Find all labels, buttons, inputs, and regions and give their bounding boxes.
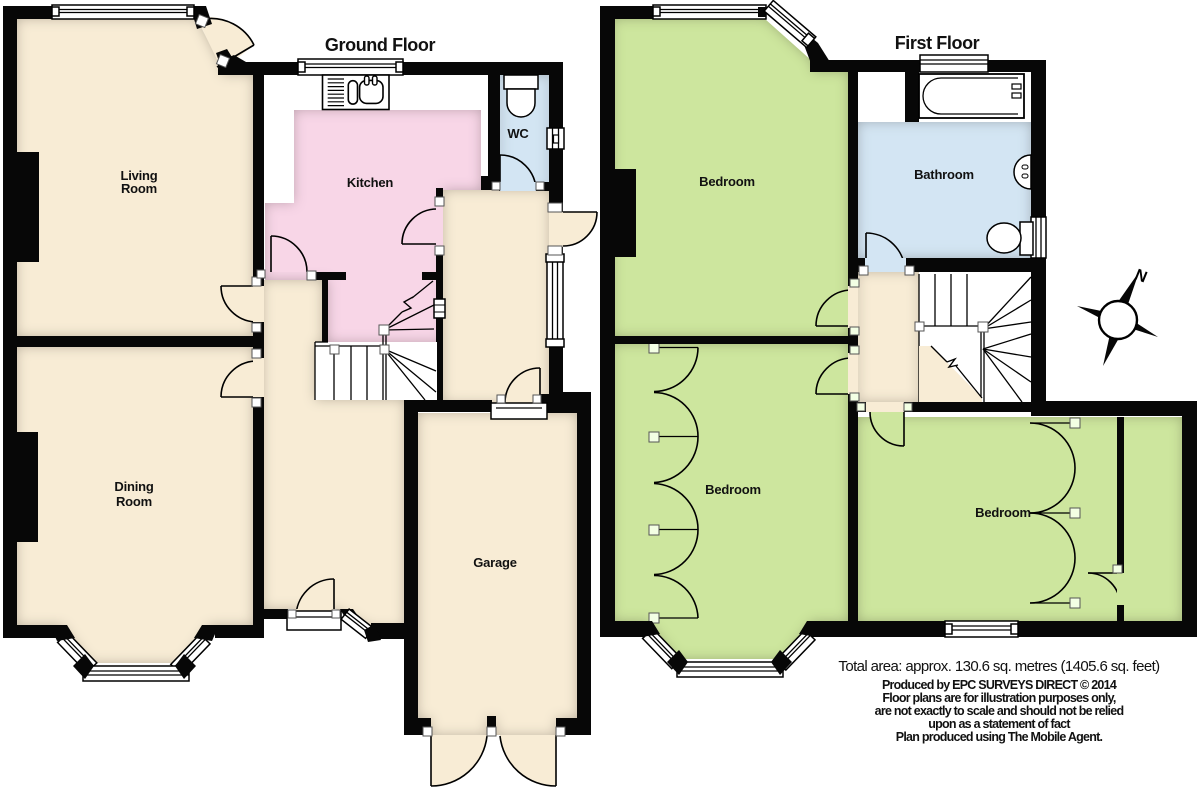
svg-text:are not exactly to scale and s: are not exactly to scale and should not … <box>875 704 1124 718</box>
svg-text:Plan produced using The Mobile: Plan produced using The Mobile Agent. <box>896 730 1103 744</box>
svg-text:Bedroom: Bedroom <box>975 505 1031 520</box>
svg-text:Bathroom: Bathroom <box>914 167 974 182</box>
svg-text:Room: Room <box>116 494 152 509</box>
svg-text:Room: Room <box>121 181 157 196</box>
svg-text:Bedroom: Bedroom <box>705 482 761 497</box>
svg-text:Floor plans are for illustrati: Floor plans are for illustration purpose… <box>882 691 1116 705</box>
svg-text:Produced by EPC SURVEYS DIRECT: Produced by EPC SURVEYS DIRECT © 2014 <box>882 678 1117 692</box>
svg-text:Ground Floor: Ground Floor <box>325 35 436 55</box>
svg-text:upon as a statement of fact: upon as a statement of fact <box>928 717 1071 731</box>
svg-text:Garage: Garage <box>473 555 517 570</box>
svg-text:First Floor: First Floor <box>895 33 980 53</box>
svg-text:Dining: Dining <box>114 479 153 494</box>
svg-text:Bedroom: Bedroom <box>699 174 755 189</box>
svg-text:Total area: approx. 130.6 sq.: Total area: approx. 130.6 sq. metres (14… <box>838 658 1160 675</box>
svg-text:WC: WC <box>507 126 529 141</box>
svg-text:Kitchen: Kitchen <box>347 175 394 190</box>
